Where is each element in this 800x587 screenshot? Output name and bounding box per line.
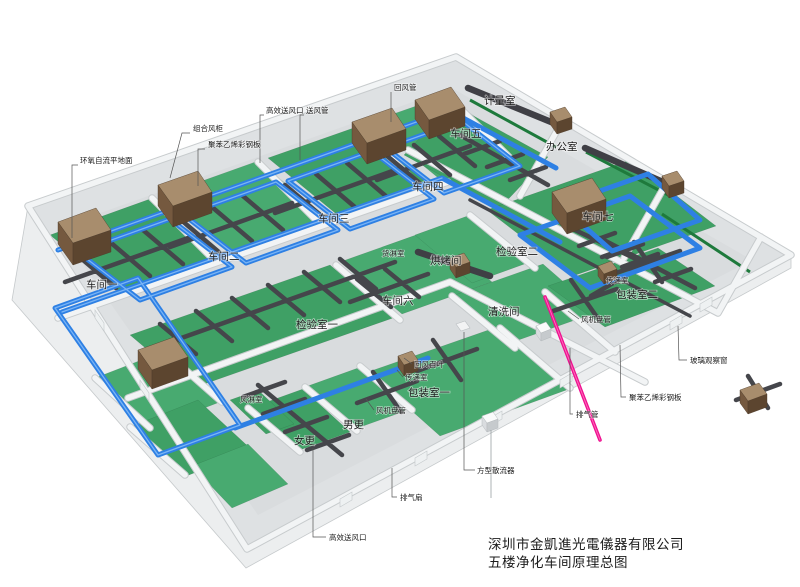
label-cargo-shower: 货淋室: [382, 248, 405, 258]
label-cleaning: 清洗间: [488, 305, 520, 318]
label-air-shower: 风淋室: [240, 394, 263, 404]
label-pass-box1: 传递室: [405, 372, 428, 382]
label-metrology: 计量室: [484, 94, 516, 107]
label-female-change: 女更: [294, 434, 315, 447]
label-inspection1: 检验室一: [296, 318, 338, 331]
callout-glass-window: 玻璃观察窗: [690, 355, 728, 365]
label-workshop6: 车间六: [382, 294, 414, 307]
callout-ahu: 组合风柜: [193, 123, 223, 133]
label-workshop7: 车间七: [582, 210, 614, 223]
company-title: 深圳市金凱進光電儀器有限公司: [488, 536, 684, 552]
fcu-box: [740, 383, 767, 414]
callout-hepa-top: 高效送风口: [266, 105, 304, 115]
label-male-change: 男更: [343, 419, 364, 431]
callout-steel-panel-right: 聚苯乙烯彩钢板: [629, 392, 682, 402]
isometric-diagram: 车间一 车间二 车间三 车间四 车间五 车间六 车间七 计量室 办公室 检验室一…: [0, 0, 800, 587]
callout-square-diffuser: 方型散流器: [477, 465, 515, 475]
title-block: 深圳市金凱進光電儀器有限公司 五楼净化车间原理总图: [488, 536, 684, 570]
label-workshop5: 车间五: [450, 127, 482, 140]
callout-exhaust-pipe: 排气管: [576, 409, 599, 419]
label-office: 办公室: [546, 140, 578, 153]
label-baking: 烘烤间: [430, 254, 462, 267]
label-workshop1: 车间一: [86, 278, 118, 291]
label-pass-box2: 传递室: [606, 275, 629, 285]
label-packing1: 包装室一: [408, 386, 450, 399]
callout-steel-panel-top: 聚苯乙烯彩钢板: [208, 139, 261, 149]
callout-fcu-2: 风机盘管: [581, 314, 611, 324]
label-workshop4: 车间四: [412, 180, 444, 193]
callout-return-louver: 回风百叶: [414, 360, 444, 369]
callout-return-duct: 回风管: [394, 82, 417, 92]
label-workshop3: 车间三: [318, 212, 350, 225]
label-workshop2: 车间二: [208, 250, 240, 263]
callout-supply-duct: 送风管: [306, 105, 329, 115]
cleanroom-3d-diagram: 车间一 车间二 车间三 车间四 车间五 车间六 车间七 计量室 办公室 检验室一…: [0, 0, 800, 587]
callout-epoxy-floor: 环氧自流平地面: [80, 155, 133, 165]
drawing-title: 五楼净化车间原理总图: [488, 554, 628, 570]
callout-hepa-bottom: 高效送风口: [329, 532, 367, 542]
callout-exhaust-fan: 排气扇: [400, 492, 423, 502]
label-inspection2: 检验室二: [496, 245, 538, 258]
label-packing2: 包装室二: [616, 288, 658, 301]
callout-fcu-1: 风机盘管: [376, 405, 406, 415]
